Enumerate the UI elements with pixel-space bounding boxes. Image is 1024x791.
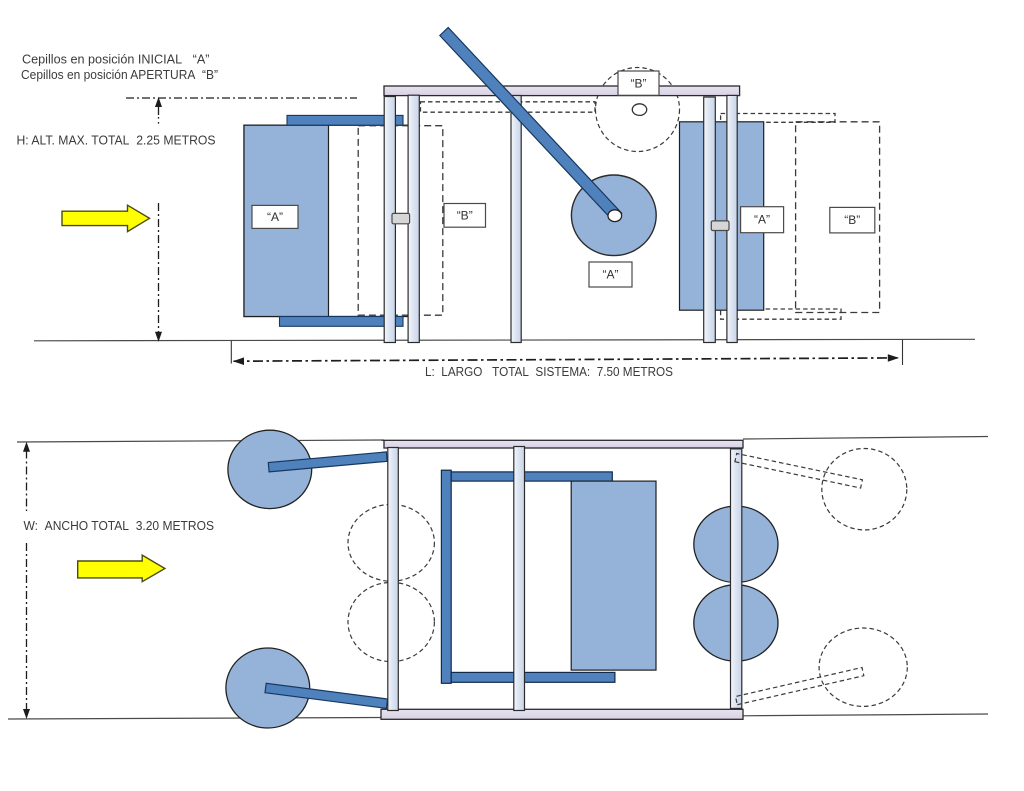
- svg-text:“A”: “A”: [603, 268, 619, 282]
- svg-text:H: ALT. MAX. TOTAL 2.25 METRO: H: ALT. MAX. TOTAL 2.25 METROS: [17, 133, 216, 148]
- svg-text:“B”: “B”: [457, 209, 473, 223]
- svg-text:“A”: “A”: [267, 210, 283, 224]
- svg-text:Cepillos en posición INICIAL: Cepillos en posición INICIAL “A”: [22, 52, 210, 67]
- svg-text:“B”: “B”: [844, 213, 860, 227]
- svg-text:L: LARGO TOTAL SISTEMA: 7: L: LARGO TOTAL SISTEMA: 7.50 METROS: [425, 365, 673, 379]
- svg-text:Cepillos en posición APERTURA: Cepillos en posición APERTURA “B”: [21, 67, 218, 82]
- svg-text:“A”: “A”: [754, 213, 770, 227]
- svg-text:“B”: “B”: [631, 77, 647, 91]
- svg-text:W: ANCHO TOTAL 3.20 METROS: W: ANCHO TOTAL 3.20 METROS: [24, 518, 215, 533]
